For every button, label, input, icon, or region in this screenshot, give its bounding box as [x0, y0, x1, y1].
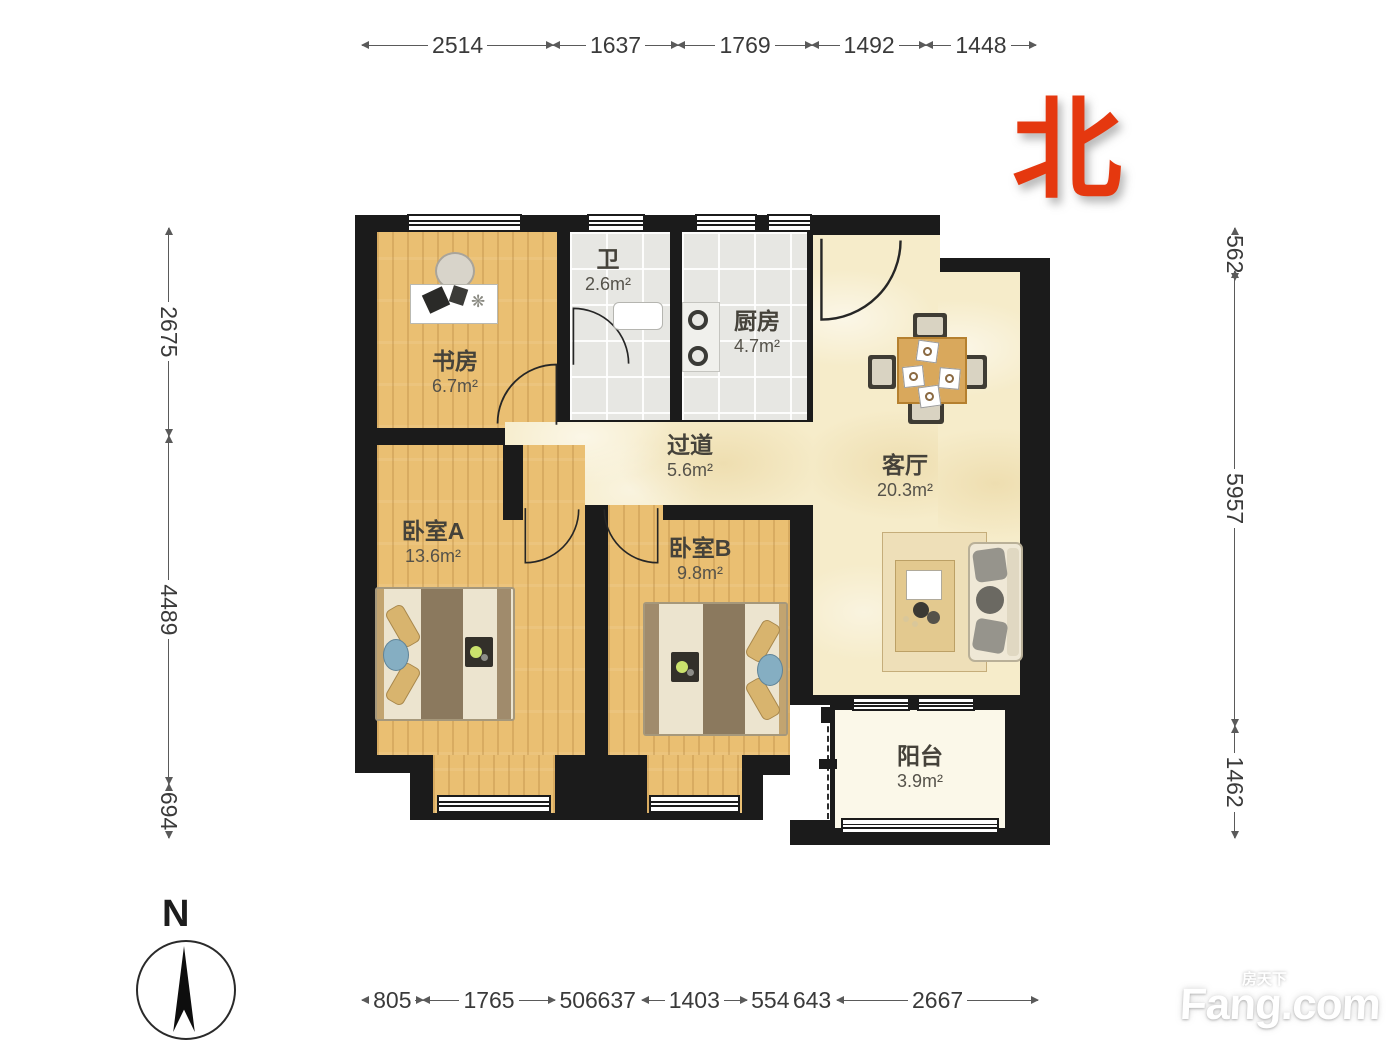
dim-value: 2667 [908, 987, 967, 1014]
dim-value: 4489 [156, 580, 183, 639]
dim-segment: 637 [594, 987, 642, 1014]
dim-value: 2675 [156, 302, 183, 361]
dim-value: 554 [747, 987, 793, 1014]
bed-round-cushion [383, 639, 409, 671]
dim-value: 694 [156, 788, 183, 834]
dim-segment: 1769 [678, 32, 813, 59]
sofa [968, 542, 1023, 662]
dim-row-bottom: 805 1765 506 637 1403 554 643 2667 [362, 983, 1038, 1017]
dim-segment: 2675 [156, 228, 183, 436]
plate [916, 340, 940, 364]
window [407, 214, 522, 232]
dim-value: 1462 [1222, 753, 1249, 812]
sofa-backrest [1007, 548, 1019, 656]
dim-row-top: 2514 1637 1769 1492 1448 [362, 28, 1036, 62]
room-label-bedroom-b: 卧室B 9.8m² [640, 535, 760, 584]
dim-value: 1769 [715, 32, 774, 59]
exterior-notch [940, 210, 1050, 258]
watermark: 房天下 Fang.com [1180, 968, 1395, 1040]
dim-segment: 4489 [156, 436, 183, 784]
room-label-balcony: 阳台 3.9m² [860, 743, 980, 792]
kettle-icon [927, 611, 940, 624]
dim-segment: 5957 [1222, 271, 1249, 726]
room-label-bedroom-a: 卧室A 13.6m² [373, 518, 493, 567]
wall-pillar [819, 759, 837, 769]
dim-row-right: 562 5957 1462 [1218, 228, 1252, 838]
room-area: 9.8m² [640, 563, 760, 585]
room-label-bath: 卫 2.6m² [550, 246, 666, 295]
window [587, 214, 645, 232]
plate [918, 385, 942, 409]
dim-segment: 1448 [926, 32, 1036, 59]
dim-segment: 1403 [642, 987, 748, 1014]
dim-segment: 506 [555, 987, 593, 1014]
room-area: 20.3m² [847, 480, 963, 502]
room-area: 4.7m² [697, 336, 817, 358]
decor-dot [903, 616, 909, 622]
dim-value: 1448 [951, 32, 1010, 59]
dim-value: 643 [789, 987, 835, 1014]
room-name: 卧室B [640, 535, 760, 563]
bed-a [375, 587, 515, 721]
room-area: 6.7m² [395, 376, 515, 398]
room-name: 客厅 [847, 452, 963, 480]
wall-segment [503, 445, 523, 520]
bed-runner [703, 604, 745, 734]
sofa-cushion [972, 547, 1008, 583]
bed-tray [465, 637, 493, 667]
dim-value: 805 [369, 987, 415, 1014]
exterior-notch [355, 773, 410, 825]
bedroom-a-door [523, 507, 581, 565]
bed-edge [497, 589, 511, 719]
dim-value: 5957 [1222, 469, 1249, 528]
room-name: 厨房 [697, 308, 817, 336]
dim-segment: 643 [789, 987, 837, 1014]
dining-chair [913, 313, 947, 339]
floorplan: ❋ [355, 210, 1050, 845]
exterior-notch [763, 775, 790, 820]
dim-segment: 2667 [837, 987, 1038, 1014]
dim-segment: 694 [156, 784, 183, 838]
dim-value: 1765 [459, 987, 518, 1014]
room-name: 卫 [550, 246, 666, 274]
compass-n-label: N [162, 893, 189, 936]
dim-segment: 1765 [423, 987, 556, 1014]
dim-segment: 1492 [812, 32, 926, 59]
dim-segment: 805 [362, 987, 423, 1014]
window [649, 795, 740, 813]
dim-segment: 2514 [362, 32, 553, 59]
window [695, 214, 757, 232]
dim-value: 1492 [840, 32, 899, 59]
dim-value: 1403 [665, 987, 724, 1014]
room-name: 过道 [630, 432, 750, 460]
watermark-logo: Fang.com [1179, 980, 1381, 1030]
window [767, 214, 812, 232]
dining-chair [868, 355, 896, 389]
room-label-kitchen: 厨房 4.7m² [697, 308, 817, 357]
dim-value: 1637 [586, 32, 645, 59]
bathtub [613, 302, 663, 330]
sofa-cushion [976, 586, 1004, 614]
room-label-hallway: 过道 5.6m² [630, 432, 750, 481]
balcony-slider-window [852, 697, 910, 711]
plate [902, 365, 925, 388]
plant-icon: ❋ [471, 292, 485, 312]
dim-segment: 1462 [1222, 726, 1249, 838]
room-label-study: 书房 6.7m² [395, 348, 515, 397]
bed-round-cushion [757, 654, 783, 686]
north-label: 北 [1012, 96, 1122, 206]
room-area: 2.6m² [550, 274, 666, 296]
floorplan-page: 2514 1637 1769 1492 1448 2675 4489 694 5… [0, 0, 1400, 1050]
balcony-window [841, 818, 999, 834]
dim-value: 2514 [428, 32, 487, 59]
wall-segment [663, 505, 790, 520]
room-label-living: 客厅 20.3m² [847, 452, 963, 501]
dim-segment: 562 [1222, 228, 1249, 271]
room-area: 3.9m² [860, 771, 980, 793]
entry-door [818, 237, 904, 323]
dim-segment: 554 [747, 987, 789, 1014]
room-name: 书房 [395, 348, 515, 376]
bed-tray [671, 652, 699, 682]
bed-b [643, 602, 788, 736]
dim-row-left: 2675 4489 694 [152, 228, 186, 838]
sofa-cushion [971, 617, 1008, 654]
balcony-slider-window [917, 697, 975, 711]
room-name: 卧室A [373, 518, 493, 546]
wall-pillar [821, 707, 835, 723]
dim-value: 637 [594, 987, 640, 1014]
bed-runner [421, 589, 463, 719]
dim-segment: 1637 [553, 32, 678, 59]
room-name: 阳台 [860, 743, 980, 771]
plate [938, 367, 961, 390]
coffee-table [906, 570, 942, 600]
room-area: 13.6m² [373, 546, 493, 568]
bed-edge [645, 604, 659, 734]
decor-dot [912, 621, 918, 627]
window [437, 795, 551, 813]
room-area: 5.6m² [630, 460, 750, 482]
